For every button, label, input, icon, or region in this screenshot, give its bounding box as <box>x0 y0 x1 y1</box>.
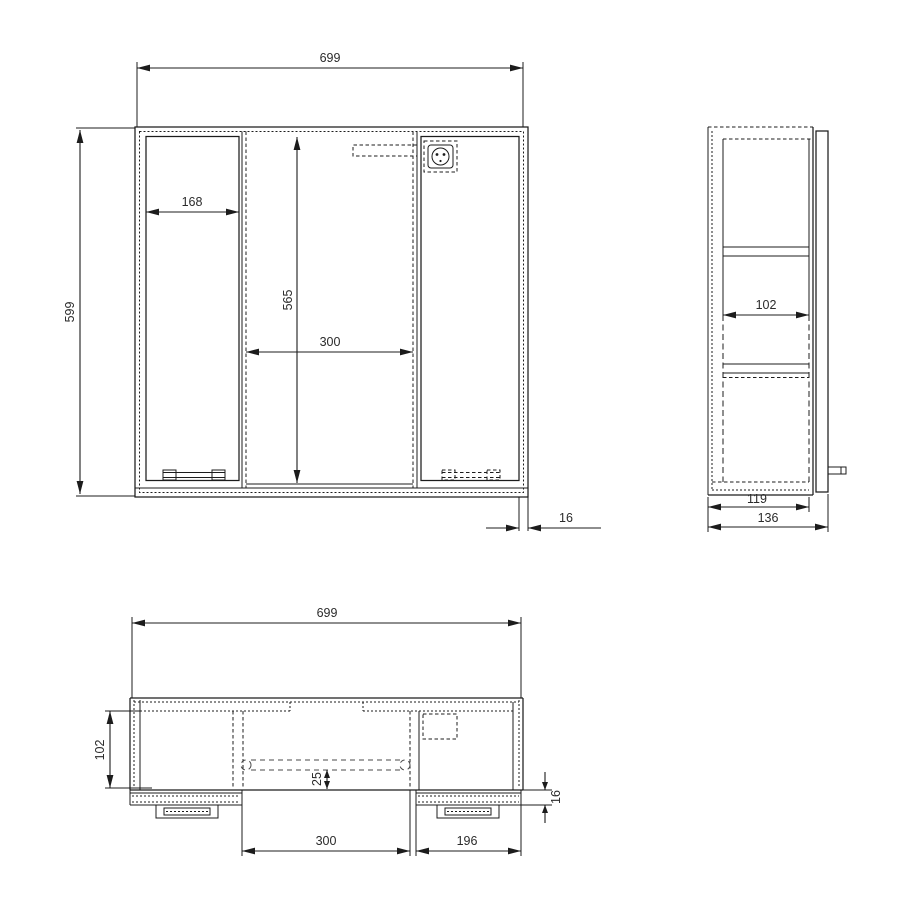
side-handle <box>828 467 846 474</box>
dim-front-left-door-width: 168 <box>146 195 239 212</box>
dim-front-overall-width-label: 699 <box>320 51 341 65</box>
dim-front-opening-height: 565 <box>281 137 297 483</box>
dim-side-carcass-depth-label: 119 <box>747 492 767 506</box>
dim-bottom-door-offset-label: 25 <box>310 772 324 786</box>
dim-bottom-opening-width-label: 300 <box>316 834 337 848</box>
bottom-socket-outline <box>423 714 457 739</box>
dim-bottom-door-thickness: 16 <box>521 772 563 823</box>
dim-bottom-inner-depth: 102 <box>93 711 152 788</box>
front-view: 699 599 168 565 300 16 <box>63 51 601 531</box>
front-right-door <box>421 137 519 481</box>
side-shelf-lower <box>723 364 809 378</box>
dim-front-left-door-width-label: 168 <box>182 195 203 209</box>
technical-drawing: 699 599 168 565 300 16 <box>0 0 900 900</box>
dim-front-opening-width: 300 <box>246 335 413 352</box>
front-left-door <box>146 137 239 481</box>
dim-bottom-door-thickness-label: 16 <box>549 790 563 804</box>
bottom-extension-lines <box>242 790 521 856</box>
bottom-hidden-rail <box>241 760 410 770</box>
bottom-view: 699 <box>93 606 563 856</box>
dim-front-overall-height-label: 599 <box>63 302 77 323</box>
dim-front-opening-height-label: 565 <box>281 290 295 311</box>
dim-front-overall-height: 599 <box>63 128 135 496</box>
dim-front-opening-width-label: 300 <box>320 335 341 349</box>
bottom-right-door <box>416 793 521 818</box>
power-socket-icon <box>424 141 457 172</box>
bottom-left-door <box>130 790 242 818</box>
front-carcass <box>135 127 528 497</box>
dim-front-panel-thickness: 16 <box>486 497 601 531</box>
side-shelf-upper <box>723 247 809 256</box>
dim-bottom-inner-depth-label: 102 <box>93 740 107 761</box>
left-door-handle <box>163 470 225 480</box>
dim-front-panel-thickness-label: 16 <box>559 511 573 525</box>
drawing-canvas: 699 599 168 565 300 16 <box>0 0 900 900</box>
dim-side-overall-depth: 136 <box>708 494 828 532</box>
dim-side-inner-depth-label: 102 <box>756 298 777 312</box>
dim-bottom-opening-width: 300 <box>242 834 410 851</box>
hidden-fixture-outline <box>353 145 417 156</box>
dim-bottom-right-door-width: 196 <box>416 834 521 851</box>
dim-bottom-overall-width: 699 <box>132 606 521 698</box>
dim-side-overall-depth-label: 136 <box>758 511 779 525</box>
dim-bottom-door-offset: 25 <box>310 770 327 789</box>
dim-side-inner-depth: 102 <box>723 298 809 315</box>
side-view: 102 119 136 <box>708 127 846 532</box>
dim-bottom-right-door-width-label: 196 <box>457 834 478 848</box>
right-door-handle <box>442 470 500 480</box>
dim-front-overall-width: 699 <box>137 51 523 127</box>
dim-bottom-overall-width-label: 699 <box>317 606 338 620</box>
side-door-panel <box>816 131 828 492</box>
